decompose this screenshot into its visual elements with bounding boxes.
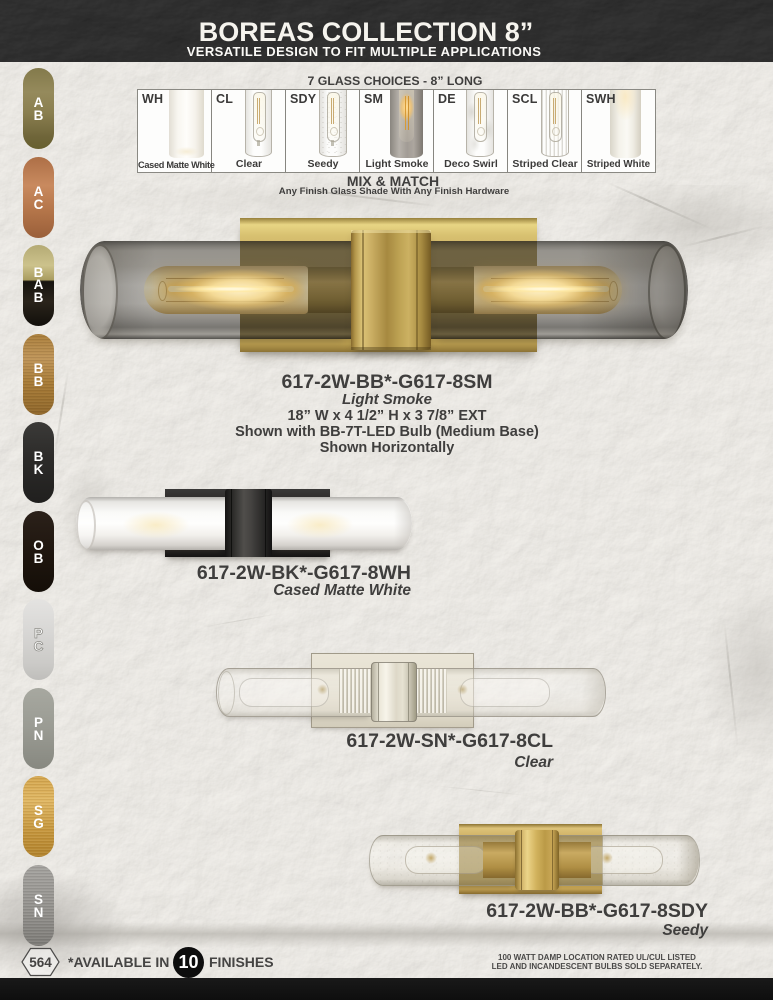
svg-text:564: 564 bbox=[29, 955, 52, 970]
